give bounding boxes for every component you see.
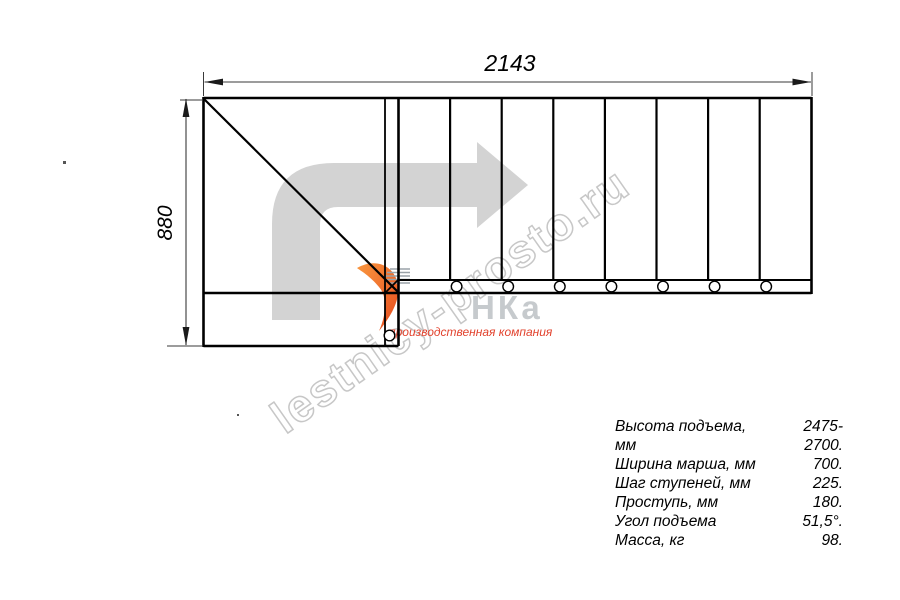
spec-row-march-width: Ширина марша, мм 700. bbox=[615, 455, 843, 474]
spec-label: Угол подъема bbox=[615, 512, 716, 531]
spec-row-height: Высота подъема, мм 2475-2700. bbox=[615, 417, 843, 455]
spec-table: Высота подъема, мм 2475-2700. Ширина мар… bbox=[615, 417, 843, 550]
spec-row-step: Шаг ступеней, мм 225. bbox=[615, 474, 843, 493]
spec-value: 225. bbox=[813, 474, 843, 493]
winder-diagonal bbox=[204, 99, 398, 293]
spec-label: Проступь, мм bbox=[615, 493, 718, 512]
baluster-circles bbox=[384, 281, 771, 341]
spec-row-mass: Масса, кг 98. bbox=[615, 531, 843, 550]
scan-artifact-dots bbox=[63, 161, 239, 416]
spec-value: 98. bbox=[821, 531, 843, 550]
spec-value: 2475-2700. bbox=[767, 417, 843, 455]
spec-label: Ширина марша, мм bbox=[615, 455, 756, 474]
spec-label: Высота подъема, мм bbox=[615, 417, 767, 455]
dimension-width-label: 2143 bbox=[460, 50, 560, 77]
spec-value: 51,5°. bbox=[802, 512, 843, 531]
spec-label: Масса, кг bbox=[615, 531, 684, 550]
spec-label: Шаг ступеней, мм bbox=[615, 474, 751, 493]
dimension-height-label: 880 bbox=[154, 183, 178, 263]
tread-lines bbox=[450, 98, 760, 280]
spec-row-angle: Угол подъема 51,5°. bbox=[615, 512, 843, 531]
flight-divider bbox=[385, 98, 399, 346]
stair-drawing-page: lestnicy-prosto.ru НКа производственная … bbox=[0, 0, 900, 600]
stair-outline bbox=[204, 97, 812, 347]
spec-value: 700. bbox=[813, 455, 843, 474]
spec-value: 180. bbox=[813, 493, 843, 512]
spec-row-tread: Проступь, мм 180. bbox=[615, 493, 843, 512]
